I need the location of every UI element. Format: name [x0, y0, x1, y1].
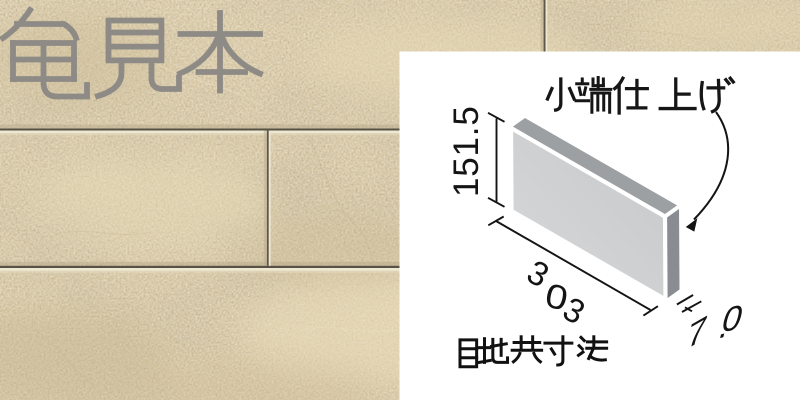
svg-text:151.5: 151.5	[447, 105, 486, 197]
